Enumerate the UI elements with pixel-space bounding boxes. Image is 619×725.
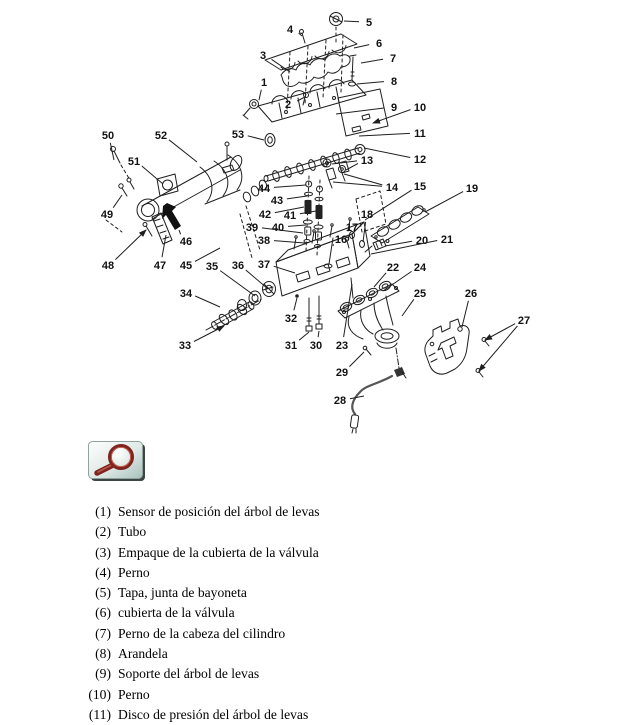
part-number: (3)	[84, 543, 111, 563]
callout-label: 44	[258, 183, 271, 195]
part-label: cubierta de la válvula	[111, 603, 235, 623]
callout-label: 45	[180, 260, 192, 272]
callout-leader-line	[274, 266, 295, 273]
callout-label: 13	[361, 155, 373, 167]
intake-manifold-art	[111, 142, 268, 221]
callout-label: 32	[285, 313, 297, 325]
cam-sensor-art	[243, 100, 259, 120]
callout-leader-line	[259, 90, 261, 100]
callout-label: 34	[180, 288, 193, 300]
callout-leader-line	[354, 45, 369, 48]
callout-label: 28	[334, 395, 346, 407]
callout-leader-line	[425, 192, 463, 212]
callout-label: 12	[414, 154, 426, 166]
valve-cover-gasket-art	[281, 54, 350, 87]
callout-leader-line	[359, 133, 410, 136]
part-list-item: (4) Perno	[84, 563, 584, 583]
callout-leader-line	[344, 21, 359, 22]
callout-leader-line	[142, 166, 163, 184]
part-number: (6)	[84, 603, 111, 623]
arrow-indicator-art	[162, 203, 181, 230]
callout-leader-line	[294, 298, 297, 310]
callout-leader-line	[288, 225, 306, 226]
magnifier-icon	[88, 441, 146, 482]
part-list-item: (10) Perno	[84, 685, 584, 705]
callout-label: 6	[376, 38, 382, 50]
callout-leader-line	[220, 271, 255, 296]
callout-label: 3	[260, 50, 266, 62]
callout-label: 48	[102, 260, 114, 272]
callout-label: 23	[336, 340, 348, 352]
callout-label: 26	[465, 288, 477, 300]
callout-leader-line	[179, 230, 181, 234]
part-number: (5)	[84, 583, 111, 603]
heat-shield-art	[425, 319, 489, 377]
callout-leader-line	[402, 299, 414, 316]
callout-label: 27	[518, 315, 530, 327]
callout-leader-line	[246, 270, 268, 289]
callout-label: 11	[414, 128, 426, 140]
callout-label: 40	[272, 222, 284, 234]
zoom-tool-button[interactable]	[88, 441, 146, 482]
part-number: (7)	[84, 624, 111, 644]
part-list-item: (7) Perno de la cabeza del cilindro	[84, 624, 584, 644]
callout-label: 20	[416, 235, 428, 247]
callout-label: 19	[466, 183, 478, 195]
callout-label: 31	[285, 340, 297, 352]
callout-label: 46	[180, 236, 192, 248]
part-label: Empaque de la cubierta de la válvula	[111, 543, 319, 563]
oxygen-sensor-art	[350, 348, 406, 433]
part-number: (11)	[84, 705, 111, 725]
part-list-item: (3) Empaque de la cubierta de la válvula	[84, 543, 584, 563]
callout-leader-line	[462, 301, 468, 327]
callout-label: 5	[366, 17, 372, 29]
part-label: Arandela	[111, 644, 168, 664]
part-label: Perno	[111, 563, 150, 583]
callout-label: 10	[414, 102, 426, 114]
callout-label: 25	[414, 288, 426, 300]
callout-leader-line	[274, 241, 305, 243]
part-label: Tapa, junta de bayoneta	[111, 583, 247, 603]
callout-leader-line	[318, 331, 319, 337]
callout-leader-line	[357, 82, 384, 84]
part-label: Tubo	[111, 522, 146, 542]
callout-label: 33	[179, 340, 191, 352]
part-label: Sensor de posición del árbol de levas	[111, 502, 320, 522]
callout-label: 2	[285, 99, 291, 111]
callout-leader-line	[113, 195, 122, 208]
callout-leader-line	[274, 185, 306, 187]
part-list-item: (5) Tapa, junta de bayoneta	[84, 583, 584, 603]
part-number: (2)	[84, 522, 111, 542]
manual-page: 1234567891011121314151617181920212223242…	[0, 0, 619, 720]
head-bolt-art	[349, 55, 357, 86]
manifold-bolts-art	[119, 178, 152, 236]
callout-leader-line	[333, 244, 334, 246]
callout-leader-line	[248, 136, 264, 140]
callout-leader-line	[287, 196, 307, 199]
part-list-item: (11) Disco de presión del árbol de levas	[84, 705, 584, 725]
callout-label: 29	[336, 367, 348, 379]
callout-label: 52	[155, 130, 167, 142]
callout-label: 21	[441, 234, 453, 246]
callout-leader-line	[485, 324, 515, 340]
callout-label: 14	[386, 182, 399, 194]
callout-label: 53	[232, 129, 244, 141]
part-label: Perno de la cabeza del cilindro	[111, 624, 285, 644]
callout-leader-line	[349, 352, 364, 367]
seal-grommet-art	[265, 134, 275, 147]
part-list-item: (1) Sensor de posición del árbol de leva…	[84, 502, 584, 522]
camshaft-art	[264, 145, 365, 183]
callout-label: 17	[346, 222, 358, 234]
part-label: Soporte del árbol de levas	[111, 664, 259, 684]
part-label: Perno	[111, 685, 150, 705]
exhaust-gasket-art	[339, 280, 393, 314]
part-list-item: (6) cubierta de la válvula	[84, 603, 584, 623]
valve-train-art	[303, 176, 323, 256]
parts-legend: (1) Sensor de posición del árbol de leva…	[84, 502, 584, 725]
callout-leader-line	[195, 296, 220, 307]
callout-label: 7	[390, 53, 396, 65]
callout-label: 9	[391, 102, 397, 114]
camshaft-rear-art	[206, 299, 262, 330]
callout-label: 30	[310, 340, 322, 352]
callout-label: 51	[128, 156, 140, 168]
part-list-item: (8) Arandela	[84, 644, 584, 664]
callout-label: 35	[206, 261, 218, 273]
callout-label: 36	[232, 260, 244, 272]
callout-label: 16	[335, 234, 347, 246]
callout-leader-line	[299, 332, 309, 340]
callout-label: 22	[387, 262, 399, 274]
callout-label: 15	[414, 181, 426, 193]
part-list-item: (9) Soporte del árbol de levas	[84, 664, 584, 684]
callout-label: 8	[391, 76, 397, 88]
callout-label: 47	[154, 260, 166, 272]
part-list-item: (2) Tubo	[84, 522, 584, 542]
callout-label: 41	[284, 210, 296, 222]
exploded-parts-diagram: 1234567891011121314151617181920212223242…	[0, 0, 619, 435]
callout-label: 39	[246, 222, 258, 234]
callout-leader-line	[336, 108, 384, 114]
callout-label: 24	[414, 262, 427, 274]
head-studs-art	[306, 296, 322, 331]
part-number: (8)	[84, 644, 111, 664]
callout-label: 50	[102, 130, 114, 142]
callout-leader-line	[361, 59, 383, 63]
callout-leader-line	[169, 140, 197, 162]
callout-label: 18	[361, 209, 373, 221]
diagram-artwork	[106, 13, 489, 434]
part-label: Disco de presión del árbol de levas	[111, 705, 308, 725]
part-number: (4)	[84, 563, 111, 583]
callout-label: 4	[287, 24, 294, 36]
callout-leader-line	[195, 248, 220, 261]
callout-label: 49	[101, 209, 113, 221]
callout-label: 38	[258, 235, 270, 247]
part-number: (10)	[84, 685, 111, 705]
callout-label: 37	[258, 259, 270, 271]
part-number: (9)	[84, 664, 111, 684]
callout-leader-line	[115, 230, 146, 260]
callout-label: 1	[261, 77, 267, 89]
callout-label: 43	[271, 195, 283, 207]
part-number: (1)	[84, 502, 111, 522]
callout-label: 42	[259, 209, 271, 221]
